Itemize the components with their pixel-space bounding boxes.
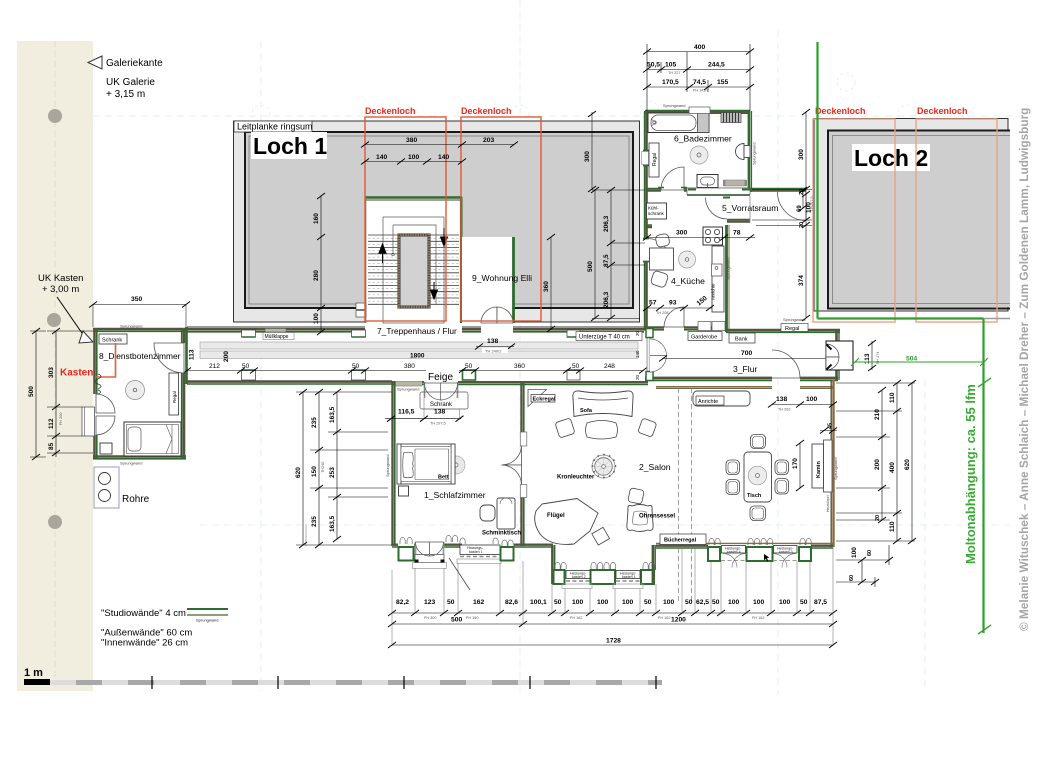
svg-text:Leitplanke ringsum: Leitplanke ringsum <box>237 122 313 132</box>
svg-text:Garderobe: Garderobe <box>691 335 717 341</box>
svg-text:50: 50 <box>465 363 473 370</box>
svg-text:T H207,5: T H207,5 <box>810 196 814 212</box>
svg-text:Anrichte: Anrichte <box>711 283 716 300</box>
svg-text:Unterzüge T 40 cm: Unterzüge T 40 cm <box>579 335 630 341</box>
svg-text:schrank: schrank <box>648 211 665 216</box>
svg-text:Moltonabhängung: ca. 55 lfm: Moltonabhängung: ca. 55 lfm <box>963 384 978 564</box>
svg-text:1728: 1728 <box>606 638 621 645</box>
svg-text:"Studiowände" 4 cm: "Studiowände" 4 cm <box>101 608 186 619</box>
svg-text:504: 504 <box>906 356 917 363</box>
svg-text:60: 60 <box>849 575 855 581</box>
svg-text:Heizkörper: Heizkörper <box>826 494 830 512</box>
svg-text:Sprungwand: Sprungwand <box>663 103 685 108</box>
svg-text:100: 100 <box>753 599 764 606</box>
svg-text:74,5: 74,5 <box>693 79 706 86</box>
svg-text:206,3: 206,3 <box>603 215 610 232</box>
svg-text:7_Treppenhaus / Flur: 7_Treppenhaus / Flur <box>377 326 457 336</box>
svg-text:300: 300 <box>798 149 805 160</box>
svg-text:Sprungwand: Sprungwand <box>752 143 757 165</box>
svg-text:50: 50 <box>352 363 360 370</box>
svg-text:100: 100 <box>851 547 858 558</box>
svg-text:1 m: 1 m <box>24 667 43 679</box>
svg-text:212: 212 <box>209 363 220 370</box>
svg-text:380: 380 <box>406 137 417 144</box>
svg-text:Deckenloch: Deckenloch <box>461 106 512 116</box>
svg-text:TH 297,5: TH 297,5 <box>430 422 446 426</box>
svg-text:Regal: Regal <box>652 153 658 166</box>
svg-text:Deckenloch: Deckenloch <box>917 106 968 116</box>
svg-text:Sprungwand: Sprungwand <box>120 324 142 329</box>
svg-text:253: 253 <box>329 467 336 478</box>
svg-text:700: 700 <box>741 350 752 357</box>
svg-text:Eckregal: Eckregal <box>533 397 556 403</box>
svg-text:50: 50 <box>800 599 808 606</box>
svg-text:FH 162: FH 162 <box>570 616 582 620</box>
svg-text:93: 93 <box>669 300 677 307</box>
svg-text:112: 112 <box>48 418 55 429</box>
svg-text:Sprungwand: Sprungwand <box>783 317 805 322</box>
svg-text:85: 85 <box>48 442 55 450</box>
svg-text:Sprungwand: Sprungwand <box>833 458 838 480</box>
svg-text:300: 300 <box>584 151 591 162</box>
svg-text:69: 69 <box>797 205 803 212</box>
svg-text:TH240: TH240 <box>321 462 325 473</box>
svg-text:1_Schlafzimmer: 1_Schlafzimmer <box>424 490 486 500</box>
svg-text:140: 140 <box>376 154 387 161</box>
svg-text:123: 123 <box>424 599 435 606</box>
svg-text:82,6: 82,6 <box>505 599 518 606</box>
svg-text:9_Wohnung Elli: 9_Wohnung Elli <box>472 273 532 283</box>
svg-text:170: 170 <box>792 458 799 469</box>
svg-text:Tisch: Tisch <box>747 493 762 499</box>
svg-text:400: 400 <box>889 462 896 473</box>
svg-text:+ 3,15 m: + 3,15 m <box>106 89 145 100</box>
svg-text:Loch 1: Loch 1 <box>253 133 327 159</box>
svg-text:200: 200 <box>874 459 881 470</box>
svg-text:100: 100 <box>313 313 320 324</box>
svg-text:140: 140 <box>438 154 449 161</box>
svg-text:3_Flur: 3_Flur <box>733 364 757 374</box>
svg-text:20: 20 <box>635 374 640 380</box>
svg-text:FH 300: FH 300 <box>424 616 436 620</box>
svg-text:Sprungwand: Sprungwand <box>385 455 390 477</box>
svg-text:235: 235 <box>311 516 318 527</box>
svg-text:2_Salon: 2_Salon <box>639 462 671 472</box>
svg-text:100: 100 <box>663 599 674 606</box>
svg-text:50: 50 <box>685 599 693 606</box>
svg-text:155: 155 <box>717 79 728 86</box>
svg-text:360: 360 <box>514 363 525 370</box>
svg-text:Feige: Feige <box>428 372 453 383</box>
svg-text:Regal: Regal <box>172 391 177 403</box>
svg-text:244,5: 244,5 <box>708 62 725 69</box>
svg-text:350: 350 <box>131 296 142 303</box>
svg-text:160: 160 <box>313 213 320 224</box>
svg-text:Schminktisch: Schminktisch <box>482 531 521 537</box>
svg-text:Schrank: Schrank <box>102 338 122 344</box>
svg-text:620: 620 <box>295 467 302 478</box>
svg-text:UK Kasten: UK Kasten <box>38 273 83 284</box>
svg-text:"Innenwände" 26 cm: "Innenwände" 26 cm <box>101 638 188 649</box>
svg-text:20: 20 <box>635 330 640 336</box>
svg-text:Loch 2: Loch 2 <box>854 145 928 171</box>
svg-text:50: 50 <box>554 599 562 606</box>
svg-text:100: 100 <box>408 154 419 161</box>
svg-text:FH 162: FH 162 <box>752 616 764 620</box>
svg-text:87,5: 87,5 <box>603 254 610 267</box>
svg-text:1800: 1800 <box>410 353 425 360</box>
svg-text:163,5: 163,5 <box>329 406 336 423</box>
svg-text:100: 100 <box>779 599 790 606</box>
svg-text:248: 248 <box>604 363 615 370</box>
svg-text:Müllklappe: Müllklappe <box>265 334 289 340</box>
svg-text:400: 400 <box>694 44 705 51</box>
svg-text:87,5: 87,5 <box>814 599 827 606</box>
svg-text:kasten 1: kasten 1 <box>469 550 483 554</box>
svg-text:Sofa: Sofa <box>580 408 593 414</box>
svg-text:Rohre: Rohre <box>122 494 150 505</box>
svg-text:Anrichte: Anrichte <box>698 399 718 405</box>
svg-text:138: 138 <box>434 409 445 416</box>
svg-text:kasten 3: kasten 3 <box>779 550 793 554</box>
svg-text:138: 138 <box>487 338 498 345</box>
svg-text:Deckenloch: Deckenloch <box>365 106 416 116</box>
svg-text:8_Dienstbotenzimmer: 8_Dienstbotenzimmer <box>99 351 181 361</box>
svg-text:200: 200 <box>223 351 230 362</box>
svg-text:150: 150 <box>311 466 318 477</box>
svg-text:Kasten: Kasten <box>60 368 93 379</box>
svg-text:Flügel: Flügel <box>547 513 565 519</box>
svg-text:60: 60 <box>867 550 873 556</box>
svg-text:210: 210 <box>874 409 881 420</box>
svg-text:© Melanie Wituschek – Anne Sch: © Melanie Wituschek – Anne Schlaich – Mi… <box>1017 108 1031 631</box>
svg-text:Sprungwand: Sprungwand <box>196 618 218 623</box>
svg-text:500: 500 <box>28 386 35 397</box>
svg-text:kasten 4: kasten 4 <box>727 550 741 554</box>
svg-text:163,5: 163,5 <box>329 515 336 532</box>
svg-text:Schrank: Schrank <box>430 402 453 408</box>
svg-text:Sprungwand: Sprungwand <box>397 387 419 392</box>
svg-text:TH 262: TH 262 <box>778 408 790 412</box>
svg-text:110: 110 <box>889 521 896 532</box>
svg-text:Kamin: Kamin <box>816 461 822 478</box>
svg-text:280: 280 <box>313 270 320 281</box>
svg-text:Kühl-: Kühl- <box>648 206 659 211</box>
svg-text:6_Badezimmer: 6_Badezimmer <box>674 134 732 144</box>
svg-text:45: 45 <box>828 423 834 429</box>
svg-text:206,3: 206,3 <box>603 291 610 308</box>
svg-text:170,5: 170,5 <box>662 79 679 86</box>
svg-text:20: 20 <box>799 189 805 195</box>
svg-text:Sprungwand: Sprungwand <box>120 461 142 466</box>
svg-text:100,1: 100,1 <box>530 599 547 606</box>
svg-text:Sprungwand: Sprungwand <box>726 258 731 280</box>
svg-text:100: 100 <box>572 599 583 606</box>
svg-text:303: 303 <box>48 367 55 378</box>
svg-text:Bett: Bett <box>438 475 449 481</box>
svg-text:+ 3,00 m: + 3,00 m <box>42 284 79 295</box>
svg-text:203: 203 <box>483 137 494 144</box>
svg-text:140: 140 <box>635 350 640 358</box>
svg-text:62,5: 62,5 <box>696 599 709 606</box>
svg-text:105: 105 <box>665 62 676 69</box>
svg-text:50: 50 <box>712 599 720 606</box>
svg-text:20: 20 <box>799 222 805 228</box>
svg-text:kasten 2: kasten 2 <box>572 575 586 579</box>
svg-text:500: 500 <box>451 617 462 624</box>
svg-text:620: 620 <box>904 459 911 470</box>
svg-text:82,2: 82,2 <box>396 599 409 606</box>
svg-text:TH 208: TH 208 <box>656 311 668 315</box>
svg-text:380: 380 <box>404 363 415 370</box>
svg-text:50: 50 <box>644 599 652 606</box>
svg-text:100: 100 <box>806 396 817 403</box>
svg-text:360: 360 <box>543 281 550 292</box>
svg-text:4_Küche: 4_Küche <box>671 276 705 286</box>
svg-text:1200: 1200 <box>671 617 686 624</box>
svg-text:Ohrensessel: Ohrensessel <box>639 514 675 520</box>
svg-text:300: 300 <box>676 230 687 237</box>
svg-text:20: 20 <box>875 515 881 521</box>
svg-text:TH 227: TH 227 <box>668 71 680 75</box>
svg-text:50: 50 <box>572 363 580 370</box>
svg-text:FH 160: FH 160 <box>466 616 478 620</box>
svg-text:100: 100 <box>597 599 608 606</box>
svg-text:500: 500 <box>587 261 594 272</box>
svg-text:50: 50 <box>447 599 455 606</box>
svg-text:235: 235 <box>311 417 318 428</box>
svg-text:Kronleuchter: Kronleuchter <box>557 475 595 481</box>
svg-text:113: 113 <box>189 349 196 360</box>
svg-text:FH 200: FH 200 <box>59 413 63 425</box>
svg-text:138: 138 <box>776 396 787 403</box>
svg-text:Bank: Bank <box>735 337 748 343</box>
svg-text:Galeriekante: Galeriekante <box>106 58 163 69</box>
svg-text:FH 162: FH 162 <box>658 616 670 620</box>
svg-text:UK Galerie: UK Galerie <box>106 77 155 88</box>
svg-text:kasten 1: kasten 1 <box>622 575 636 579</box>
svg-text:TH 240/2: TH 240/2 <box>485 349 502 354</box>
svg-text:110: 110 <box>889 392 896 403</box>
svg-text:374: 374 <box>798 275 805 286</box>
svg-text:162: 162 <box>473 599 484 606</box>
svg-text:100: 100 <box>728 599 739 606</box>
svg-text:50,5: 50,5 <box>647 62 660 69</box>
svg-text:116,5: 116,5 <box>398 409 415 416</box>
svg-text:Regal: Regal <box>785 326 799 332</box>
svg-text:Bücherregal: Bücherregal <box>664 538 697 544</box>
svg-text:FH 142/7: FH 142/7 <box>693 89 709 93</box>
svg-text:100: 100 <box>622 599 633 606</box>
svg-text:Deckenloch: Deckenloch <box>815 106 866 116</box>
svg-text:78: 78 <box>733 230 741 237</box>
